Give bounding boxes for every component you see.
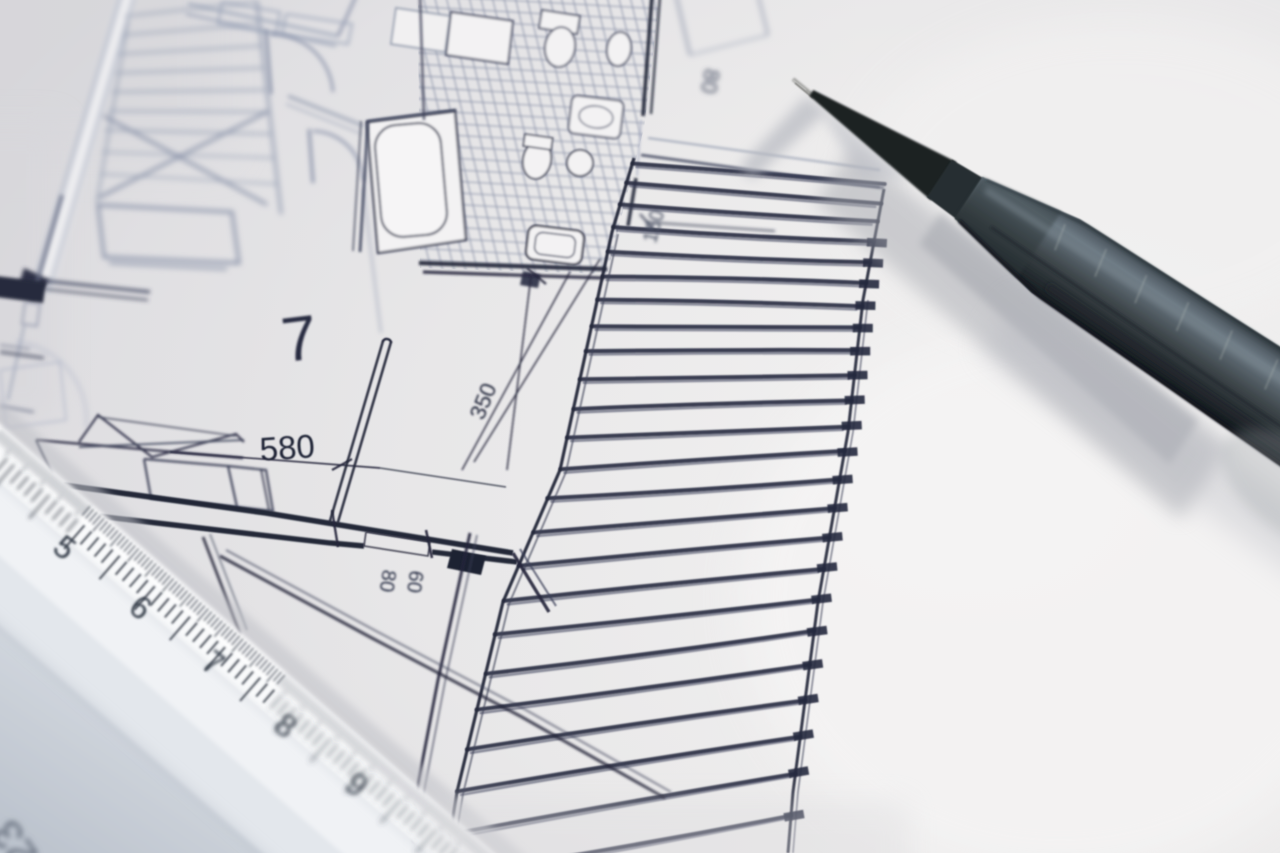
svg-text:60: 60 (402, 569, 427, 594)
svg-text:80: 80 (375, 568, 400, 593)
svg-text:80: 80 (696, 67, 725, 95)
